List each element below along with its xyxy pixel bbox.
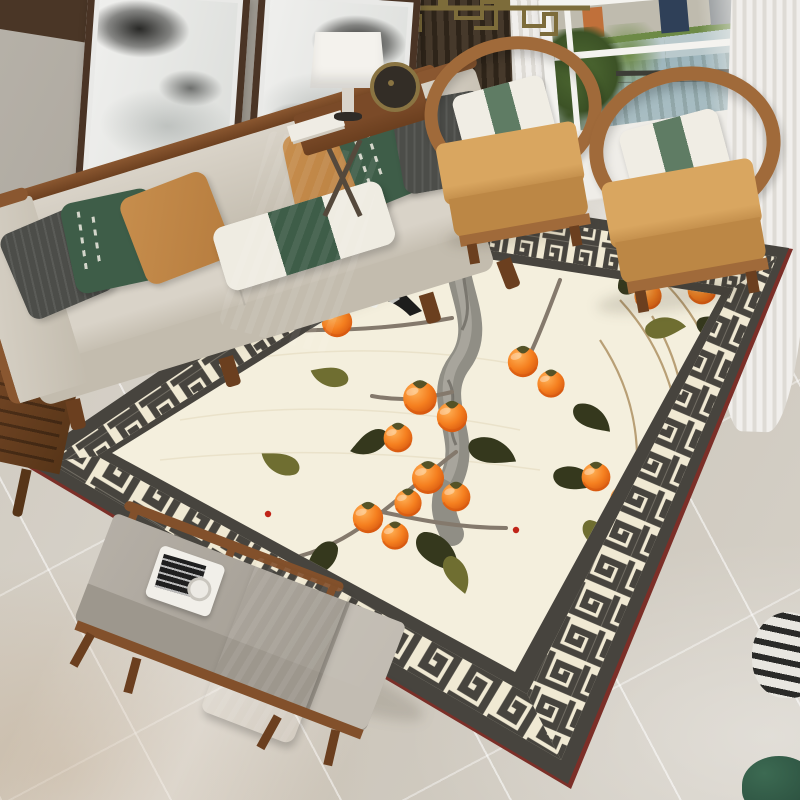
chair-leg bbox=[467, 243, 480, 264]
sofa-leg bbox=[496, 257, 521, 290]
bench-leg bbox=[70, 632, 95, 668]
bench-leg bbox=[323, 729, 340, 766]
bench-leg bbox=[123, 657, 141, 694]
lamp-stem bbox=[342, 88, 354, 114]
chair-leg bbox=[569, 225, 582, 246]
living-room-photo bbox=[0, 0, 800, 800]
sofa-leg bbox=[219, 355, 242, 388]
sofa-leg bbox=[419, 292, 442, 325]
chair-leg bbox=[635, 290, 649, 313]
chair-leg bbox=[745, 270, 759, 293]
lamp-base bbox=[334, 112, 362, 121]
armchair-right bbox=[570, 54, 791, 313]
